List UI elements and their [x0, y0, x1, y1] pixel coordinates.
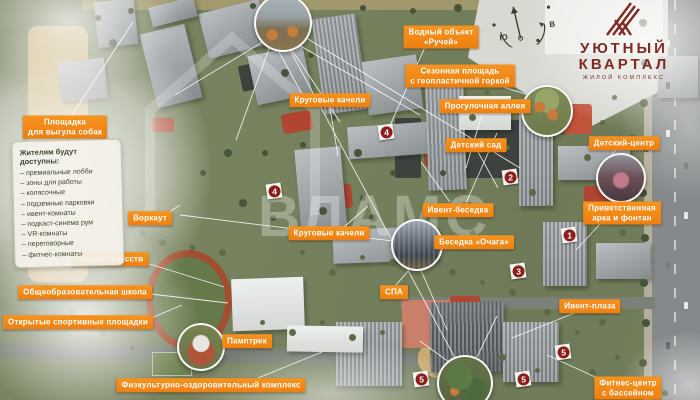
masterplan-map: ВЛАМС — [0, 0, 700, 400]
building-number-badge[interactable]: 4 — [378, 124, 395, 141]
amenities-list: премиальные лобби зоны для работы колясо… — [20, 167, 116, 261]
map-label-arch-fountain[interactable]: Приветственная арка и фонтан — [583, 202, 661, 225]
building-number-badge[interactable]: 2 — [502, 169, 519, 186]
badge-number: 5 — [517, 373, 529, 385]
map-label-workout[interactable]: Воркаут — [128, 211, 172, 225]
map-label-fok[interactable]: Физкультурно-оздоровительный комплекс — [116, 378, 305, 392]
building-number-badge[interactable]: 5 — [413, 371, 430, 388]
compass-east-label: В — [549, 20, 556, 30]
badge-number: 5 — [557, 346, 569, 358]
amenities-panel: Жителям будут доступны: премиальные лобб… — [11, 139, 124, 269]
amenity-item: фитнес-комнаты — [22, 248, 116, 261]
map-label-school[interactable]: Общеобразовательная школа — [18, 285, 152, 299]
logo-emblem-icon — [597, 2, 651, 36]
map-label-fitness[interactable]: Фитнес-центр с бассейном — [594, 377, 661, 400]
building-number-badge[interactable]: 1 — [561, 227, 578, 244]
badge-number: 1 — [563, 229, 575, 241]
building-number-badge[interactable]: 5 — [515, 371, 532, 388]
logo-title-line2: КВАРТАЛ — [556, 57, 692, 73]
map-label-sport-grounds[interactable]: Открытые спортивные площадки — [3, 315, 153, 329]
map-label-alley[interactable]: Прогулочная аллея — [440, 99, 531, 113]
map-label-swings-mid[interactable]: Круговые качели — [289, 226, 370, 240]
inset-photo-pumptrack — [177, 323, 225, 371]
compass-rose: Ю В — [484, 0, 560, 50]
badge-number: 2 — [504, 171, 516, 183]
map-label-event-plaza[interactable]: Ивент-плаза — [559, 299, 620, 313]
map-label-dog-area[interactable]: Площадка для выгула собак — [23, 116, 107, 139]
map-label-event-gazebo[interactable]: Ивент-беседка — [423, 203, 494, 217]
badge-number: 4 — [380, 126, 392, 138]
map-label-kindergarten[interactable]: Детский сад — [446, 138, 507, 152]
map-label-spa[interactable]: СПА — [380, 285, 408, 299]
badge-number: 4 — [268, 185, 280, 197]
map-label-kids-center[interactable]: Детский-центр — [589, 136, 660, 150]
badge-number: 3 — [512, 265, 524, 277]
inset-photo-arch — [596, 153, 646, 203]
map-label-seasonal-hill[interactable]: Сезонная площадь с геопластичной горкой — [405, 65, 515, 88]
building-number-badge[interactable]: 5 — [555, 344, 572, 361]
logo-title-line1: УЮТНЫЙ — [556, 41, 692, 57]
map-label-water-object[interactable]: Водный объект «Ручей» — [404, 26, 479, 49]
building-number-badge[interactable]: 3 — [510, 263, 527, 280]
logo-subtitle: ЖИЛОЙ КОМПЛЕКС — [556, 75, 692, 81]
map-label-hearth-gazebo[interactable]: Беседка «Очага» — [434, 235, 514, 249]
amenities-panel-title: Жителям будут доступны: — [20, 146, 114, 166]
badge-number: 5 — [415, 373, 427, 385]
building-number-badge[interactable]: 4 — [266, 183, 283, 200]
map-label-swings-top[interactable]: Круговые качели — [290, 93, 371, 107]
map-label-pump-track[interactable]: Памптрек — [222, 334, 272, 348]
compass-south-label: Ю — [499, 33, 508, 43]
complex-logo: УЮТНЫЙ КВАРТАЛ ЖИЛОЙ КОМПЛЕКС — [556, 2, 692, 81]
